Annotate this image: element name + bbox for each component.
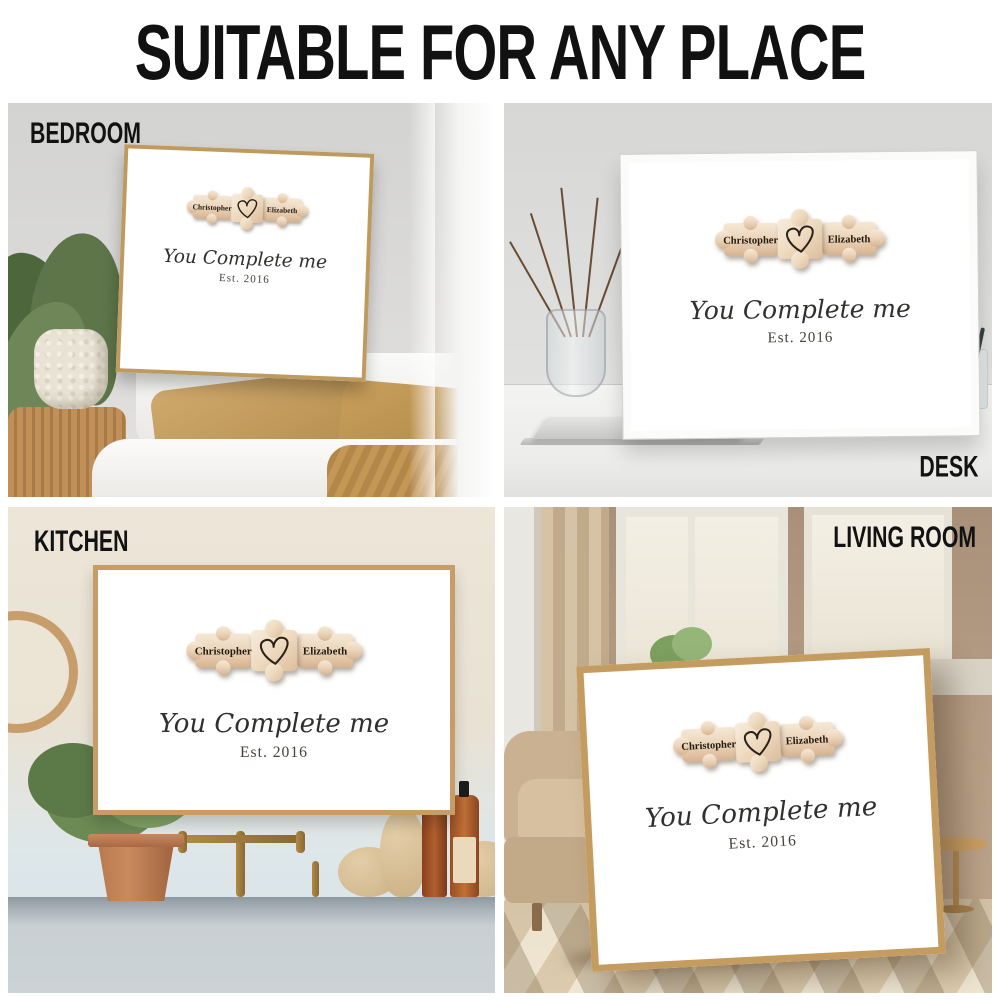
product-collage: SUITABLE FOR ANY PLACE BEDROOM — [0, 0, 1000, 1000]
laptop-base — [520, 438, 765, 445]
title-banner: SUITABLE FOR ANY PLACE — [0, 0, 1000, 103]
faucet-handle — [296, 831, 305, 853]
poster-name-right: Elizabeth — [267, 205, 299, 215]
page-title: SUITABLE FOR ANY PLACE — [135, 6, 866, 96]
terracotta-pot — [92, 839, 180, 901]
kitchen-counter — [8, 897, 495, 993]
kitchen-label: KITCHEN — [34, 525, 128, 559]
poster-established: Est. 2016 — [768, 329, 834, 347]
round-wood-mirror — [8, 611, 78, 733]
poster-name-left: Christopher — [192, 202, 232, 213]
poster-established: Est. 2016 — [219, 272, 270, 286]
scene-living-room: Christopher Elizabeth You Complete me Es… — [504, 507, 992, 993]
puzzle-piece-center — [734, 711, 782, 773]
puzzle-pieces-graphic: Christopher Elizabeth — [694, 190, 906, 286]
puzzle-piece-center — [777, 208, 822, 268]
bottle-spout — [459, 781, 469, 797]
glass-vase — [546, 309, 606, 397]
puzzle-piece-center — [251, 619, 297, 681]
terracotta-pot-rim — [88, 834, 184, 847]
poster-desk: Christopher Elizabeth You Complete me Es… — [621, 151, 980, 439]
poster-living-room: Christopher Elizabeth You Complete me Es… — [576, 648, 946, 972]
side-table-leg — [953, 847, 959, 909]
poster-tagline: You Complete me — [163, 246, 328, 273]
poster-bedroom: Christopher Elizabeth You Complete me Es… — [116, 144, 375, 381]
poster-kitchen: Christopher Elizabeth You Complete me Es… — [93, 565, 455, 815]
scene-desk: Christopher Elizabeth You Complete me Es… — [504, 103, 992, 497]
textured-vase — [34, 329, 108, 409]
poster-established: Est. 2016 — [728, 832, 797, 854]
poster-name-right: Elizabeth — [827, 234, 870, 245]
poster-name-right: Elizabeth — [303, 645, 347, 657]
faucet-sprayer — [312, 861, 319, 897]
sheer-curtain — [429, 103, 495, 497]
living-room-label: LIVING ROOM — [833, 521, 976, 555]
poster-tagline: You Complete me — [159, 709, 389, 739]
puzzle-piece-center — [230, 186, 263, 230]
gourd — [380, 809, 426, 897]
puzzle-pieces-graphic: Christopher Elizabeth — [165, 602, 383, 699]
sill-plant — [672, 627, 712, 661]
oil-bottle — [422, 805, 447, 897]
poster-established: Est. 2016 — [240, 744, 308, 762]
poster-name-right: Elizabeth — [785, 734, 828, 747]
poster-tagline: You Complete me — [644, 792, 878, 834]
armchair-leg — [532, 903, 542, 931]
bedroom-label: BEDROOM — [30, 117, 141, 151]
poster-name-left: Christopher — [195, 645, 252, 657]
puzzle-pieces-graphic: Christopher Elizabeth — [171, 172, 323, 244]
poster-tagline: You Complete me — [689, 294, 911, 325]
scene-bedroom: BEDROOM Christopher Elizabeth — [8, 103, 495, 497]
puzzle-pieces-graphic: Christopher Elizabeth — [650, 689, 865, 794]
scene-kitchen: KITCHEN Christopher Eli — [8, 507, 495, 993]
poster-name-left: Christopher — [723, 235, 778, 247]
bottle-label — [453, 837, 476, 883]
desk-label: DESK — [919, 451, 978, 485]
faucet-crossbar — [182, 835, 300, 843]
